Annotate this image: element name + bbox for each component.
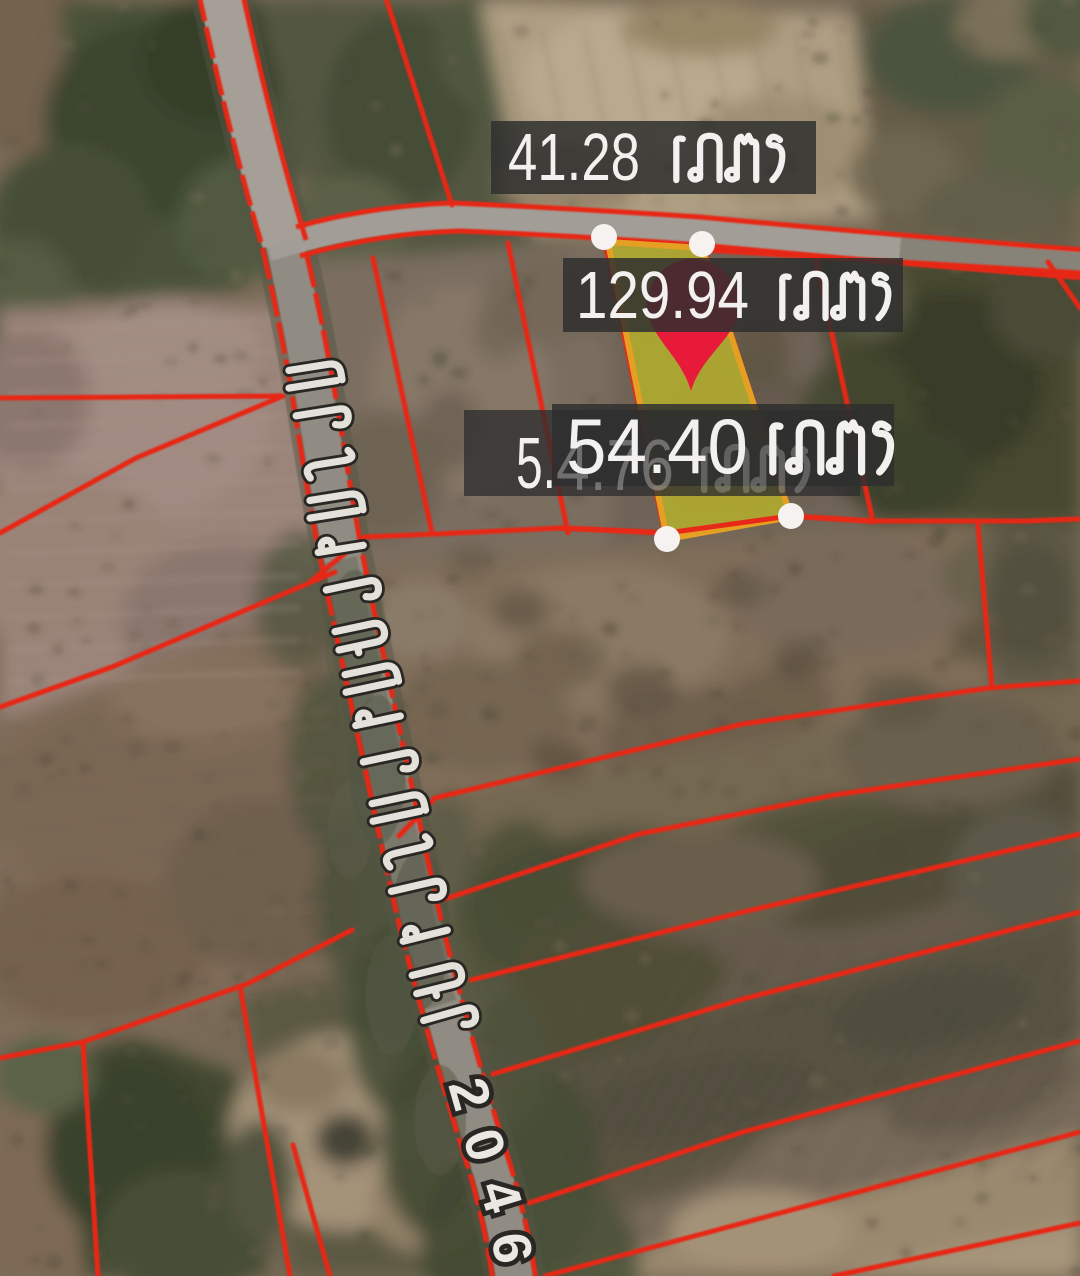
svg-text:41.28: 41.28 — [508, 120, 640, 195]
svg-text:54.40: 54.40 — [566, 402, 748, 490]
svg-text:129.94: 129.94 — [576, 258, 749, 333]
svg-text:5.: 5. — [516, 424, 556, 504]
